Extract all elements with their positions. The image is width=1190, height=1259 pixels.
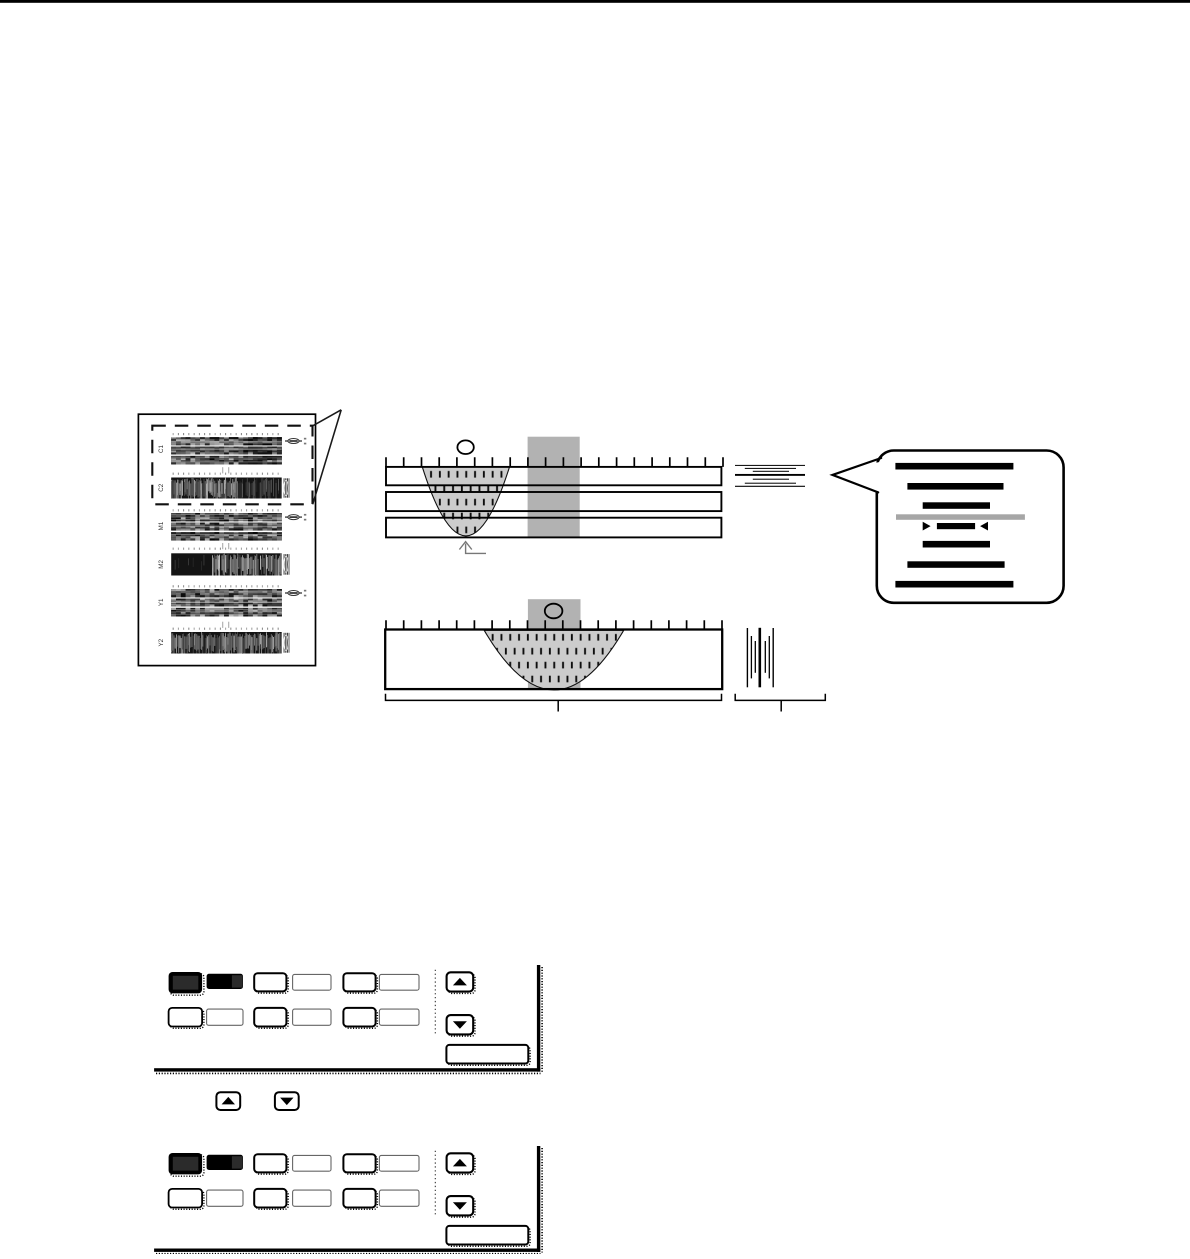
svg-text:M2: M2 bbox=[158, 560, 165, 569]
svg-text:Y2: Y2 bbox=[158, 638, 165, 646]
svg-text:M1: M1 bbox=[158, 521, 165, 530]
svg-text:C1: C1 bbox=[158, 444, 165, 452]
svg-text:Y1: Y1 bbox=[158, 598, 165, 606]
svg-text:C2: C2 bbox=[158, 483, 165, 491]
